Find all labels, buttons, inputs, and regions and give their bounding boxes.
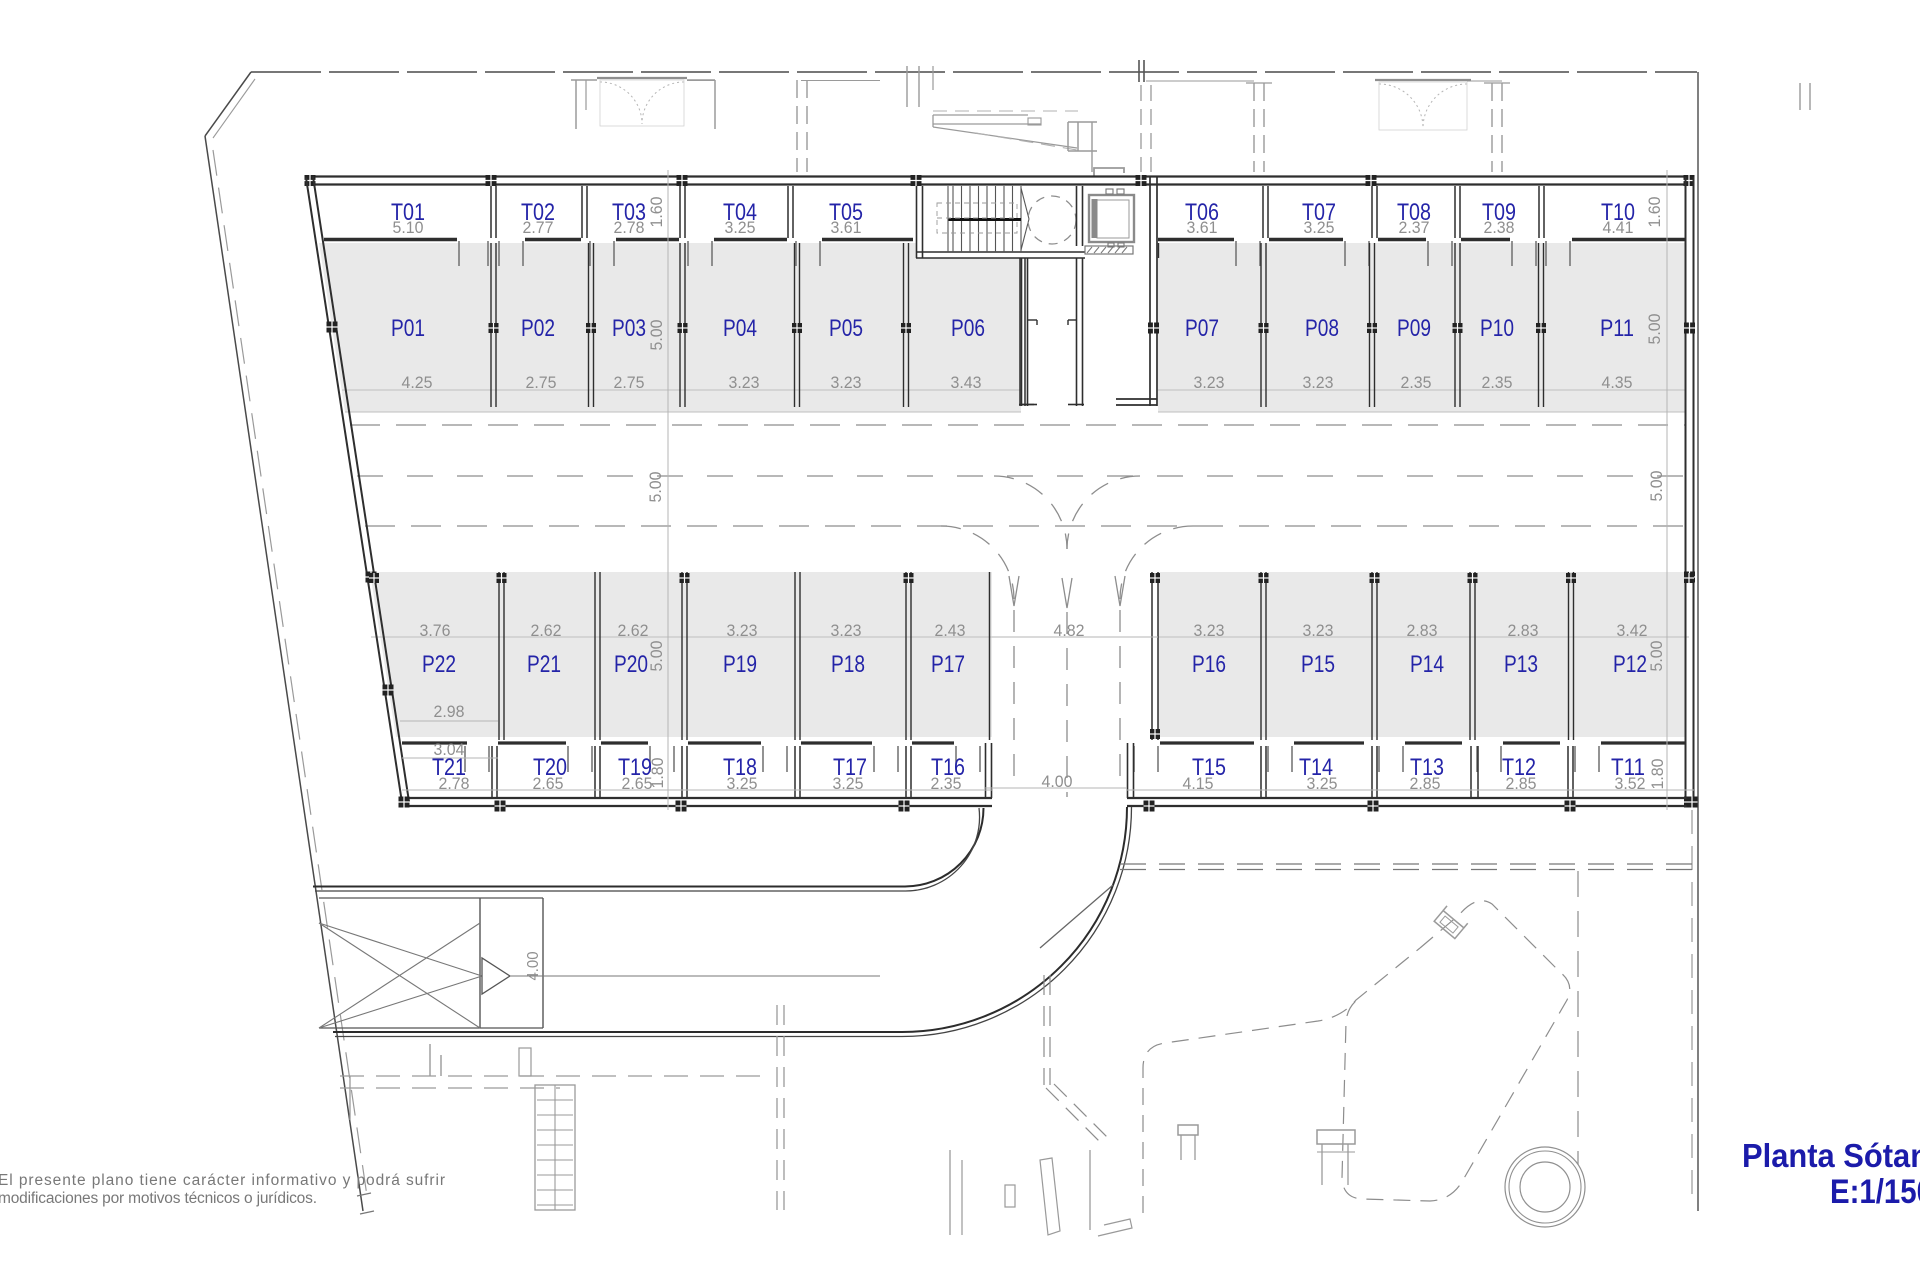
svg-text:P06: P06 bbox=[951, 315, 985, 342]
svg-text:2.35: 2.35 bbox=[1401, 374, 1432, 392]
svg-text:P20: P20 bbox=[614, 651, 648, 678]
svg-text:P10: P10 bbox=[1480, 315, 1514, 342]
svg-text:4.82: 4.82 bbox=[1054, 622, 1085, 640]
svg-text:2.78: 2.78 bbox=[439, 775, 470, 793]
svg-text:P07: P07 bbox=[1185, 315, 1219, 342]
svg-text:2.38: 2.38 bbox=[1484, 219, 1515, 237]
svg-text:P15: P15 bbox=[1301, 651, 1335, 678]
svg-text:3.23: 3.23 bbox=[1194, 622, 1225, 640]
svg-text:4.15: 4.15 bbox=[1183, 775, 1214, 793]
svg-text:1.80: 1.80 bbox=[1649, 759, 1667, 790]
svg-text:P05: P05 bbox=[829, 315, 863, 342]
svg-text:2.83: 2.83 bbox=[1407, 622, 1438, 640]
svg-text:3.23: 3.23 bbox=[831, 622, 862, 640]
svg-text:3.25: 3.25 bbox=[1307, 775, 1338, 793]
svg-text:5.00: 5.00 bbox=[648, 320, 666, 351]
svg-text:5.00: 5.00 bbox=[1648, 641, 1666, 672]
svg-text:2.37: 2.37 bbox=[1399, 219, 1430, 237]
svg-text:2.62: 2.62 bbox=[531, 622, 562, 640]
svg-text:2.75: 2.75 bbox=[526, 374, 557, 392]
svg-text:3.23: 3.23 bbox=[1194, 374, 1225, 392]
svg-text:P17: P17 bbox=[931, 651, 965, 678]
svg-text:Planta Sótano: Planta Sótano bbox=[1742, 1138, 1920, 1175]
svg-text:P09: P09 bbox=[1397, 315, 1431, 342]
svg-text:3.23: 3.23 bbox=[727, 622, 758, 640]
svg-text:3.23: 3.23 bbox=[729, 374, 760, 392]
svg-text:P14: P14 bbox=[1410, 651, 1444, 678]
svg-text:2.98: 2.98 bbox=[434, 703, 465, 721]
svg-text:1.60: 1.60 bbox=[1646, 197, 1664, 228]
svg-text:2.43: 2.43 bbox=[935, 622, 966, 640]
svg-text:5.00: 5.00 bbox=[647, 472, 665, 503]
svg-text:2.62: 2.62 bbox=[618, 622, 649, 640]
svg-text:P02: P02 bbox=[521, 315, 555, 342]
svg-text:2.85: 2.85 bbox=[1410, 775, 1441, 793]
svg-text:5.00: 5.00 bbox=[648, 641, 666, 672]
svg-text:3.52: 3.52 bbox=[1615, 775, 1646, 793]
svg-text:4.00: 4.00 bbox=[1042, 773, 1073, 791]
svg-text:3.76: 3.76 bbox=[420, 622, 451, 640]
svg-text:2.78: 2.78 bbox=[614, 219, 645, 237]
svg-text:4.25: 4.25 bbox=[402, 374, 433, 392]
svg-text:4.35: 4.35 bbox=[1602, 374, 1633, 392]
svg-text:2.75: 2.75 bbox=[614, 374, 645, 392]
svg-text:P01: P01 bbox=[391, 315, 425, 342]
svg-text:P13: P13 bbox=[1504, 651, 1538, 678]
svg-text:4.41: 4.41 bbox=[1603, 219, 1634, 237]
svg-text:2.77: 2.77 bbox=[523, 219, 554, 237]
svg-text:E:1/150: E:1/150 bbox=[1830, 1173, 1920, 1211]
svg-text:2.65: 2.65 bbox=[622, 775, 653, 793]
svg-text:2.85: 2.85 bbox=[1506, 775, 1537, 793]
svg-text:2.83: 2.83 bbox=[1508, 622, 1539, 640]
svg-text:1.80: 1.80 bbox=[649, 758, 667, 789]
svg-text:3.61: 3.61 bbox=[1187, 219, 1218, 237]
svg-text:3.23: 3.23 bbox=[1303, 374, 1334, 392]
svg-text:3.25: 3.25 bbox=[727, 775, 758, 793]
svg-text:2.35: 2.35 bbox=[931, 775, 962, 793]
svg-text:3.23: 3.23 bbox=[1303, 622, 1334, 640]
svg-text:3.25: 3.25 bbox=[833, 775, 864, 793]
svg-text:P03: P03 bbox=[612, 315, 646, 342]
svg-text:P18: P18 bbox=[831, 651, 865, 678]
svg-text:3.43: 3.43 bbox=[951, 374, 982, 392]
svg-text:4.00: 4.00 bbox=[525, 951, 542, 980]
svg-text:P11: P11 bbox=[1600, 315, 1634, 342]
svg-text:3.61: 3.61 bbox=[831, 219, 862, 237]
svg-text:5.00: 5.00 bbox=[1646, 314, 1664, 345]
svg-text:P12: P12 bbox=[1613, 651, 1647, 678]
svg-text:modificaciones por motivos téc: modificaciones por motivos técnicos o ju… bbox=[0, 1190, 317, 1207]
svg-text:P21: P21 bbox=[527, 651, 561, 678]
svg-text:3.25: 3.25 bbox=[1304, 219, 1335, 237]
svg-text:3.25: 3.25 bbox=[725, 219, 756, 237]
svg-text:1.60: 1.60 bbox=[648, 197, 666, 228]
svg-text:P04: P04 bbox=[723, 315, 757, 342]
svg-text:El presente plano tiene caráct: El presente plano tiene carácter informa… bbox=[0, 1172, 445, 1189]
svg-text:2.65: 2.65 bbox=[533, 775, 564, 793]
svg-text:P19: P19 bbox=[723, 651, 757, 678]
svg-text:P16: P16 bbox=[1192, 651, 1226, 678]
svg-text:5.00: 5.00 bbox=[1648, 471, 1666, 502]
svg-text:P08: P08 bbox=[1305, 315, 1339, 342]
svg-text:3.42: 3.42 bbox=[1617, 622, 1648, 640]
svg-text:5.10: 5.10 bbox=[393, 219, 424, 237]
svg-text:3.23: 3.23 bbox=[831, 374, 862, 392]
svg-text:2.35: 2.35 bbox=[1482, 374, 1513, 392]
svg-text:P22: P22 bbox=[422, 651, 456, 678]
